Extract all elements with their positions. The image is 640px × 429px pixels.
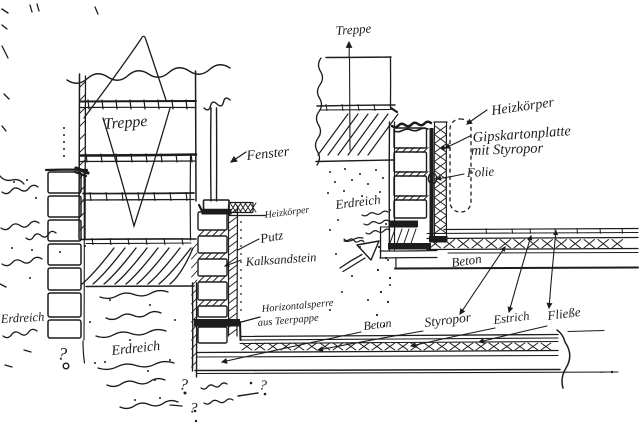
svg-text:Treppe: Treppe <box>103 113 148 133</box>
svg-text:Treppe: Treppe <box>335 21 372 38</box>
svg-text:mit Styropor: mit Styropor <box>471 140 544 159</box>
svg-text:Folie: Folie <box>465 164 494 180</box>
svg-text:Erdreich: Erdreich <box>0 310 45 326</box>
